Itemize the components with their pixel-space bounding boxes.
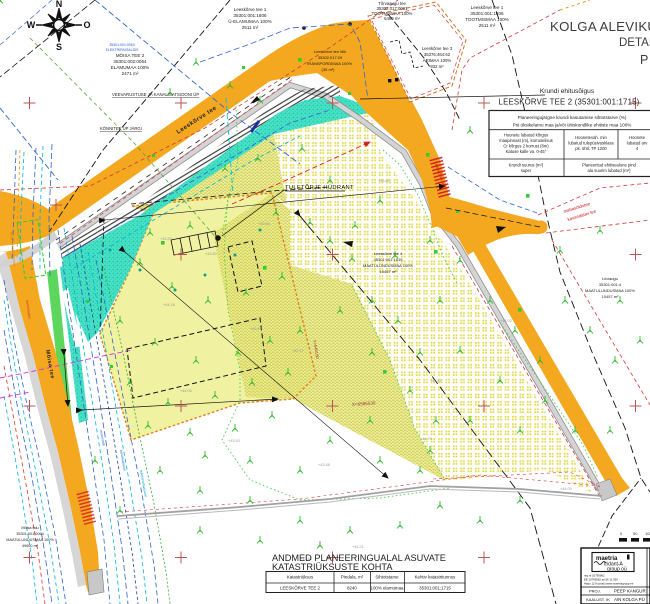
svg-text:W: W — [27, 20, 36, 30]
svg-text:lubatud tulepüsivusklass: lubatud tulepüsivusklass — [568, 141, 613, 146]
svg-text:+43.66: +43.66 — [258, 222, 270, 226]
svg-text:35301:001:1606: 35301:001:1606 — [233, 13, 267, 18]
svg-text:TRANSPORDIMAA 100%: TRANSPORDIMAA 100% — [306, 61, 352, 66]
svg-text:8240: 8240 — [347, 586, 357, 591]
svg-text:Leeskõrve tee 1: Leeskõrve tee 1 — [471, 5, 504, 10]
svg-text:+44.18: +44.18 — [163, 303, 175, 307]
svg-text:35301:001:0063: 35301:001:0063 — [109, 43, 134, 47]
svg-text:+44.00: +44.00 — [560, 487, 572, 491]
svg-text:group oü: group oü — [607, 567, 627, 573]
svg-text:PEEP KANGUR: PEEP KANGUR — [614, 589, 646, 594]
svg-text:49600 m²: 49600 m² — [22, 544, 39, 548]
svg-text:6489 m²: 6489 m² — [384, 16, 400, 21]
svg-text:AIN KOLGA PÜ: AIN KOLGA PÜ — [614, 597, 645, 602]
svg-text:35301:001:1615: 35301:001:1615 — [374, 257, 404, 262]
svg-text:+43.80: +43.80 — [378, 179, 390, 183]
svg-text:Mõisa talu: Mõisa talu — [21, 526, 38, 530]
svg-text:35302:017:29: 35302:017:29 — [318, 55, 343, 60]
svg-text:N: N — [56, 0, 63, 9]
svg-text:TOOTMISMAA 100%: TOOTMISMAA 100% — [465, 17, 509, 22]
svg-text:(35 m²): (35 m²) — [322, 67, 336, 72]
svg-text:Kehtiv katastritunnus: Kehtiv katastritunnus — [415, 575, 457, 580]
svg-text:Cr kõrgus 2 korrust (8m): Cr kõrgus 2 korrust (8m) — [503, 144, 549, 149]
svg-text:100% elamumaa: 100% elamumaa — [371, 586, 405, 591]
svg-text:O: O — [83, 20, 90, 30]
svg-text:10457 m²: 10457 m² — [602, 294, 620, 299]
svg-text:Hoonetevah. min: Hoonetevah. min — [575, 135, 607, 140]
svg-text:+44.21: +44.21 — [352, 545, 364, 549]
svg-text:+43.20: +43.20 — [160, 237, 172, 241]
svg-text:Hoonete lubatud kõrgus: Hoonete lubatud kõrgus — [504, 133, 548, 138]
svg-text:ELAMUMAA 100%: ELAMUMAA 100% — [111, 65, 150, 70]
svg-text:2471 m²: 2471 m² — [122, 71, 139, 76]
svg-text:+44.02: +44.02 — [500, 319, 512, 323]
svg-text:pk. ühtl. TP 1200: pk. ühtl. TP 1200 — [575, 146, 607, 151]
svg-text:Katuse kalle va. 0-45°: Katuse kalle va. 0-45° — [506, 149, 547, 154]
svg-text:S: S — [56, 42, 62, 52]
svg-text:2511 m²: 2511 m² — [479, 23, 496, 28]
svg-text:35301:001:1715: 35301:001:1715 — [419, 586, 451, 591]
svg-text:VEEVARUSTUSE JA KANALISATSIOON: VEEVARUSTUSE JA KANALISATSIOONI ÜP — [112, 92, 199, 97]
svg-text:35376:464:62: 35376:464:62 — [424, 52, 451, 57]
svg-text:+43.48: +43.48 — [318, 463, 330, 467]
svg-text:+43.50: +43.50 — [205, 252, 217, 256]
svg-text:35301:001:4: 35301:001:4 — [599, 282, 622, 287]
svg-text:Planeeringujärgne krundi kasut: Planeeringujärgne krundi kasutamise siht… — [518, 115, 627, 120]
svg-text:LEESKÕRVE TEE 2: LEESKÕRVE TEE 2 — [280, 586, 320, 591]
svg-text:maapinnast (m), korruselisus: maapinnast (m), korruselisus — [499, 138, 553, 143]
svg-text:ELEKTRIPAIGALDIS: ELEKTRIPAIGALDIS — [106, 48, 139, 52]
svg-text:2511 m²: 2511 m² — [242, 25, 259, 30]
svg-text:+45.81: +45.81 — [430, 379, 442, 383]
svg-text:super: super — [521, 168, 532, 173]
svg-text:MAATULUNDUSMAA 100%: MAATULUNDUSMAA 100% — [6, 538, 54, 542]
svg-text:Krundi suurus (m²): Krundi suurus (m²) — [509, 163, 544, 168]
svg-text:DETAILPLANEERING: DETAILPLANEERING — [619, 37, 650, 49]
svg-text:Krundi ehitusõigus: Krundi ehitusõigus — [540, 88, 595, 95]
svg-text:LEESKÕRVE TEE 2 (35301:001:171: LEESKÕRVE TEE 2 (35301:001:1715) — [499, 98, 640, 107]
svg-text:+43.93: +43.93 — [228, 439, 240, 443]
svg-text:Liiviaugu: Liiviaugu — [602, 276, 618, 281]
svg-text:+42.17: +42.17 — [292, 349, 304, 353]
svg-text:KATASTRIÜKSUSTE KOHTA: KATASTRIÜKSUSTE KOHTA — [272, 562, 393, 572]
svg-text:50: 50 — [633, 531, 638, 536]
svg-text:ÄRIMAA 100%: ÄRIMAA 100% — [423, 58, 452, 63]
svg-text:+44.70: +44.70 — [420, 437, 432, 441]
svg-text:Pst üksikelamu maa ja/või ühis: Pst üksikelamu maa ja/või ühiskondlike e… — [513, 123, 632, 128]
svg-text:MAATULUNDUSMAA 100%: MAATULUNDUSMAA 100% — [363, 263, 413, 268]
svg-text:Planeeritud ehitisealune pind: Planeeritud ehitisealune pind — [582, 163, 636, 168]
svg-text:Leeskõrve tee 3: Leeskõrve tee 3 — [422, 46, 453, 51]
svg-text:35301:001:0064: 35301:001:0064 — [16, 532, 43, 536]
svg-text:Leeskõrve tee lõik: Leeskõrve tee lõik — [314, 49, 346, 54]
svg-text:Sihtotstarve: Sihtotstarve — [375, 575, 399, 580]
svg-text:Katastriüksus: Katastriüksus — [287, 575, 314, 580]
svg-text:MÕISA TEE 2: MÕISA TEE 2 — [116, 52, 145, 58]
svg-text:Hoonete: Hoonete — [629, 135, 646, 140]
svg-text:Leeskõrve tee 4: Leeskõrve tee 4 — [374, 251, 403, 256]
svg-text:ala suurim lubatud (m²): ala suurim lubatud (m²) — [587, 168, 631, 173]
svg-text:lubatud arv: lubatud arv — [627, 141, 649, 146]
svg-text:+43.48: +43.48 — [250, 327, 262, 331]
svg-text:P: P — [640, 53, 648, 67]
svg-text:100: 100 — [645, 531, 650, 536]
svg-text:TULETÕRJE HÜDRANT: TULETÕRJE HÜDRANT — [285, 184, 354, 191]
svg-text:Ü-ELAMUMAA 100%: Ü-ELAMUMAA 100% — [228, 18, 271, 24]
svg-text:KÕNNITEE ÜP JÄRGI: KÕNNITEE ÜP JÄRGI — [100, 126, 142, 131]
svg-text:+44.05: +44.05 — [180, 389, 192, 393]
svg-text:10457 m²: 10457 m² — [380, 269, 398, 274]
svg-text:832 m²: 832 m² — [430, 64, 444, 69]
svg-text:35301:002:0064: 35301:002:0064 — [113, 59, 147, 64]
svg-text:Harju 12 Kuusalu www.maetria: Harju 12 Kuusalu www.maetriagrupp.ee — [584, 582, 634, 586]
svg-text:35301:001:1606: 35301:001:1606 — [470, 11, 504, 16]
svg-text:KOLGA ALEVIKU LEES: KOLGA ALEVIKU LEES — [550, 19, 650, 34]
svg-text:MAATULUNDUSMAA 100%: MAATULUNDUSMAA 100% — [585, 288, 635, 293]
svg-text:Pindala, m²: Pindala, m² — [341, 575, 364, 580]
svg-text:KAALUST. IK: KAALUST. IK — [586, 597, 610, 602]
svg-text:Leeskõrve tee 1: Leeskõrve tee 1 — [234, 7, 267, 12]
svg-text:PROJ.: PROJ. — [589, 589, 601, 594]
